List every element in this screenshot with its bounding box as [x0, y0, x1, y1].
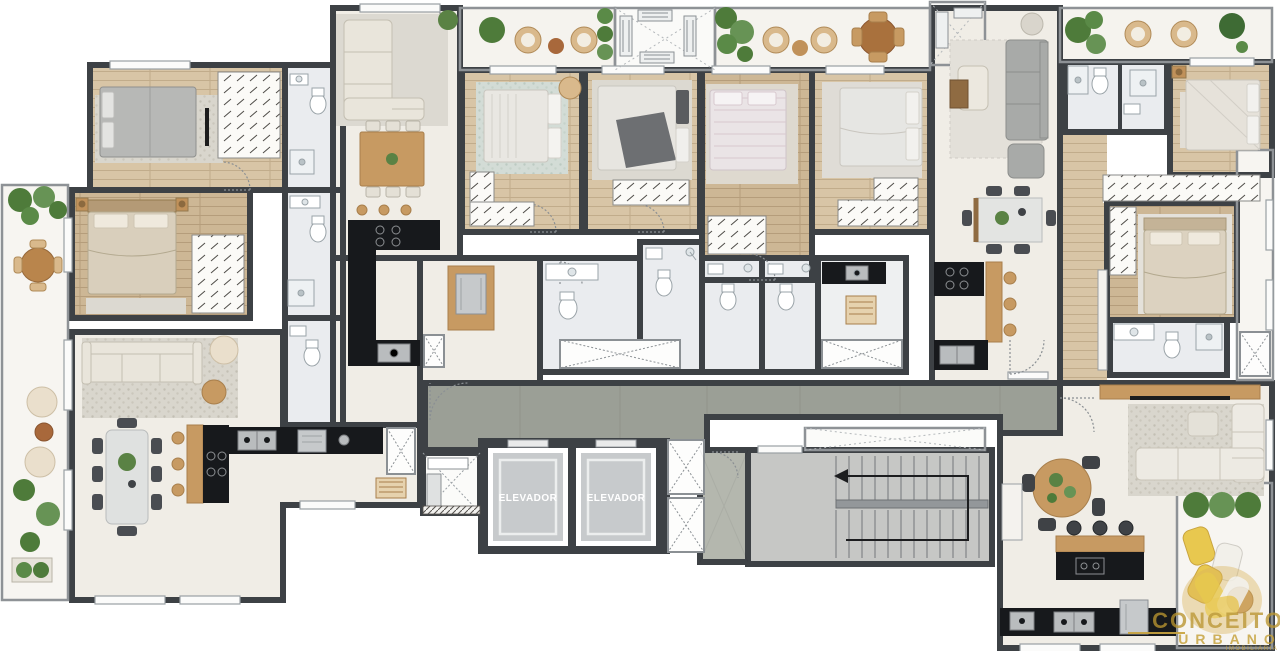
stair-mid-rail: [836, 500, 988, 508]
dining-table-6: [360, 121, 424, 197]
floor-plan-canvas: ELEVADOR ELEVADOR: [0, 0, 1280, 651]
elevator-block: ELEVADOR ELEVADOR: [478, 438, 670, 554]
wardrobe: [218, 72, 280, 158]
pouf: [1021, 13, 1043, 35]
rug: [86, 298, 186, 314]
plant: [737, 46, 753, 62]
chair-cushion: [521, 33, 535, 47]
plant: [49, 201, 67, 219]
plant: [1183, 492, 1209, 518]
ac-return-grille: [376, 478, 406, 498]
floor-plan-image: ELEVADOR ELEVADOR: [0, 0, 1280, 651]
elevator-1-door: [508, 440, 548, 447]
armchair: [1008, 144, 1044, 178]
watermark-line1: CONCEITO: [1152, 608, 1280, 633]
papasan-chair: [210, 336, 238, 364]
plant: [1236, 41, 1248, 53]
pouf: [35, 423, 53, 441]
plant: [33, 562, 49, 578]
wardrobe: [470, 202, 534, 226]
chair-cushion: [769, 33, 783, 47]
papasan-chair: [27, 387, 57, 417]
closet-hatch: [560, 340, 680, 368]
wardrobe: [874, 178, 918, 200]
pantry-cabinet: [1002, 484, 1022, 540]
chair-cushion: [1177, 27, 1191, 41]
chair-cushion: [1131, 27, 1145, 41]
watermark-line2: URBANO: [1178, 631, 1280, 647]
pouf: [792, 40, 808, 56]
shaft: [668, 440, 704, 494]
chair-cushion: [577, 33, 591, 47]
wardrobe: [613, 180, 689, 205]
shaft: [387, 428, 415, 474]
bed-double-beige: [76, 198, 188, 294]
plant: [479, 17, 505, 43]
kitchen-island: [1056, 521, 1144, 580]
tv-panel: [205, 108, 209, 146]
plant: [36, 502, 60, 526]
side-table: [950, 80, 968, 108]
plant: [1085, 11, 1103, 29]
lobby-bench: [428, 458, 468, 469]
plant: [1086, 34, 1106, 54]
wardrobe: [1110, 207, 1136, 275]
wardrobe: [192, 235, 244, 313]
papasan-chair: [25, 447, 55, 477]
trash-bin: [427, 474, 441, 508]
bed-m3: [710, 90, 786, 170]
plant: [1219, 13, 1245, 39]
plant: [438, 10, 458, 30]
plant: [597, 8, 613, 24]
plant: [1209, 492, 1235, 518]
refrigerator: [1120, 600, 1148, 634]
linen-cabinet: [1098, 270, 1107, 370]
elevator-2-label: ELEVADOR: [587, 493, 646, 504]
bed-m4: [840, 88, 922, 166]
plant: [16, 562, 32, 578]
plant: [597, 26, 613, 42]
watermark-line3: IMOBILIÁRIA: [1226, 645, 1279, 651]
plant: [21, 207, 39, 225]
elevator-1: ELEVADOR: [488, 440, 568, 546]
plant: [13, 479, 35, 501]
elevator-2-door: [596, 440, 636, 447]
elevator-1-label: ELEVADOR: [499, 493, 558, 504]
shaft: [1240, 332, 1270, 376]
tv: [1130, 396, 1230, 400]
bed-double-gray: [100, 87, 196, 157]
pouf: [548, 38, 564, 54]
sofa-gray: [1006, 40, 1048, 140]
entry-mat: [423, 506, 480, 514]
plant: [1235, 492, 1261, 518]
shaft: [668, 498, 704, 552]
sofa: [82, 342, 202, 384]
round-table: [559, 77, 581, 99]
plant: [717, 34, 737, 54]
closet-hatch: [822, 340, 902, 368]
plant: [597, 44, 613, 60]
chair-cushion: [817, 33, 831, 47]
elevator-2: ELEVADOR: [576, 440, 656, 546]
wardrobe: [708, 216, 766, 254]
wardrobe-corridor: [1103, 175, 1260, 201]
kitchen-island: [448, 266, 494, 330]
shaft: [424, 335, 444, 367]
plant: [20, 532, 40, 552]
wardrobe: [470, 172, 494, 202]
side-table: [202, 380, 226, 404]
wardrobe: [838, 200, 918, 226]
bed-m2: [598, 86, 689, 170]
